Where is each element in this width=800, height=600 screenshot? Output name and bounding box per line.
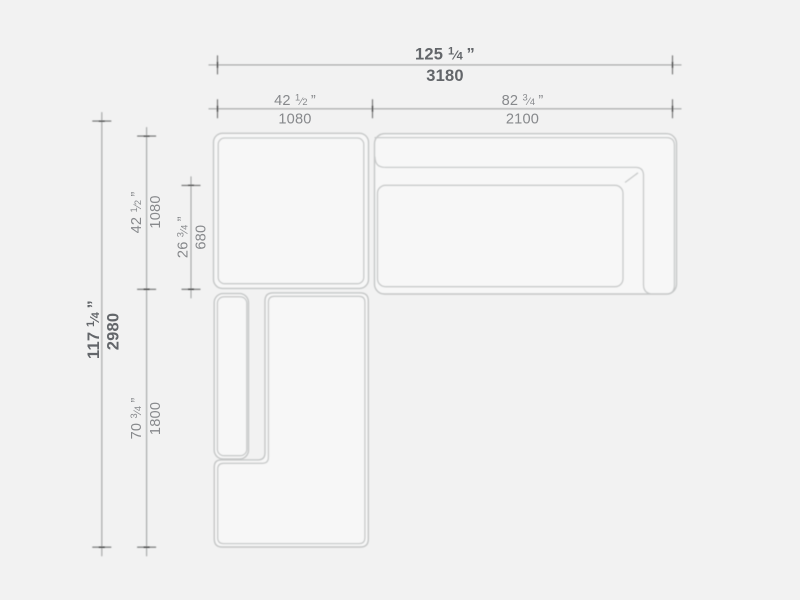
svg-text:2980: 2980	[104, 313, 122, 351]
svg-text:1080: 1080	[148, 195, 164, 228]
svg-text:125 1⁄4 ”: 125 1⁄4 ”	[415, 45, 475, 63]
svg-text:1080: 1080	[278, 112, 311, 128]
svg-text:3180: 3180	[426, 67, 464, 85]
svg-text:117 1⁄4 ”: 117 1⁄4 ”	[85, 300, 103, 359]
svg-text:680: 680	[194, 225, 210, 250]
svg-text:2100: 2100	[506, 111, 539, 127]
svg-text:1800: 1800	[148, 402, 164, 435]
